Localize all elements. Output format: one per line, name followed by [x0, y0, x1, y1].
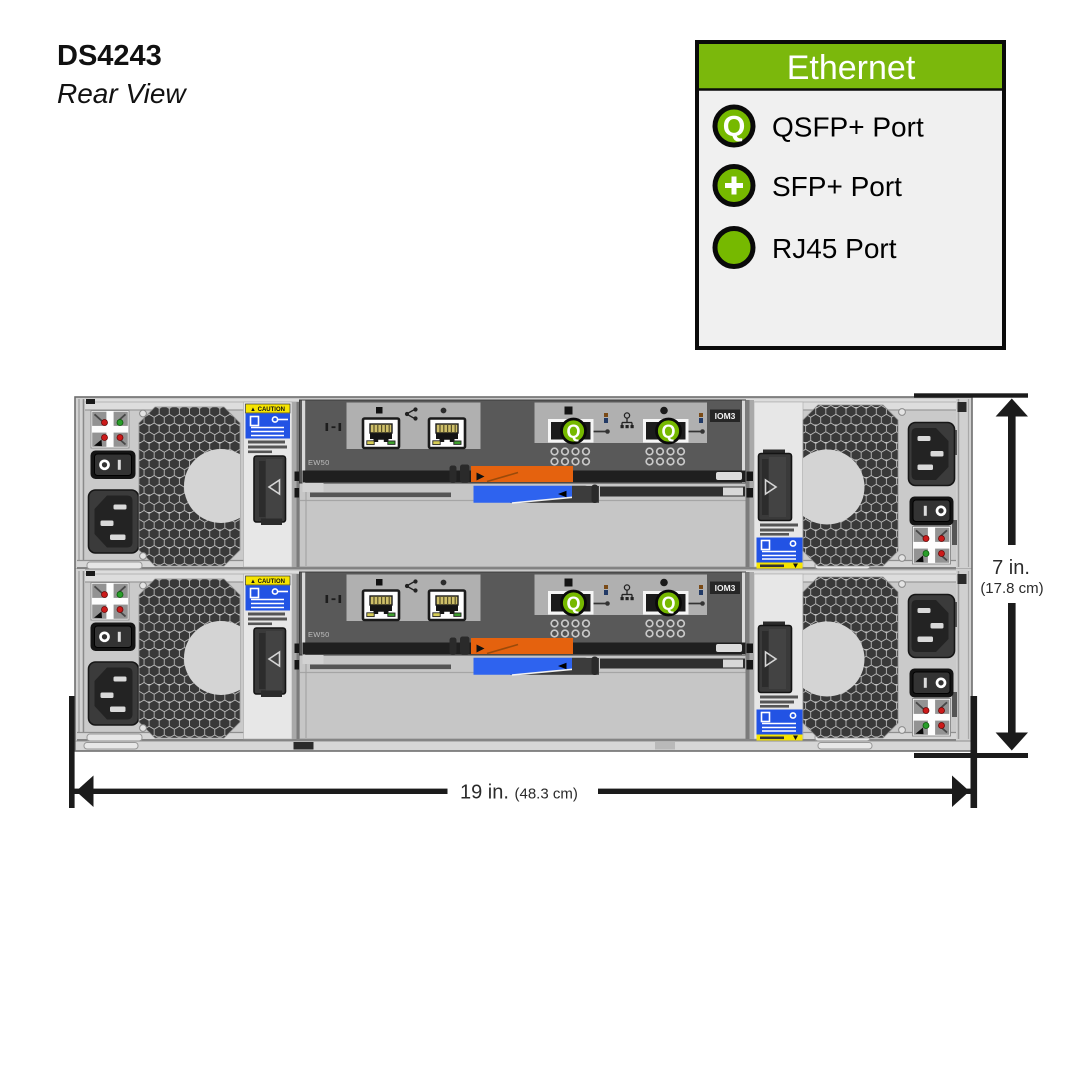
svg-text:7 in.: 7 in. — [992, 557, 1030, 579]
svg-text:Q: Q — [723, 111, 746, 143]
svg-text:19 in. (48.3 cm): 19 in. (48.3 cm) — [460, 782, 578, 804]
svg-text:RJ45 Port: RJ45 Port — [772, 233, 897, 264]
svg-text:(17.8 cm): (17.8 cm) — [980, 580, 1043, 597]
svg-text:Ethernet: Ethernet — [787, 49, 916, 87]
svg-text:SFP+ Port: SFP+ Port — [772, 171, 902, 202]
svg-text:QSFP+ Port: QSFP+ Port — [772, 112, 924, 143]
svg-text:Rear View: Rear View — [57, 78, 187, 109]
svg-text:DS4243: DS4243 — [57, 40, 162, 72]
